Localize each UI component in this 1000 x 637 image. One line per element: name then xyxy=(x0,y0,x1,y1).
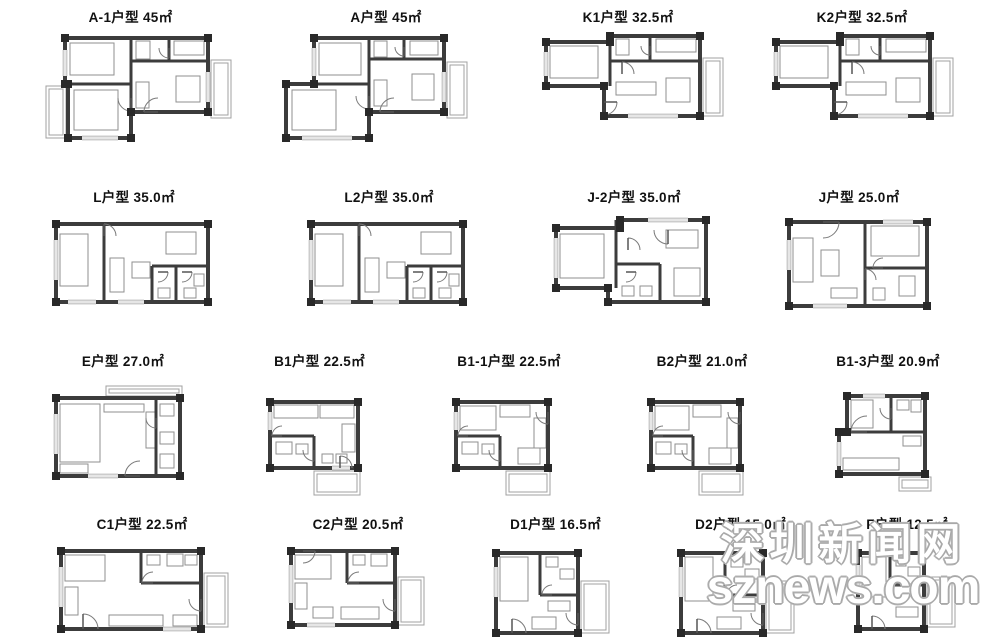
floor-plan-E: E户型 27.0㎡ xyxy=(48,352,198,482)
floor-plan-sheet: A-1户型 45㎡A户型 45㎡K1户型 32.5㎡K2户型 32.5㎡L户型 … xyxy=(0,0,1000,630)
plan-label: A户型 45㎡ xyxy=(272,8,500,30)
floor-plan-drawing xyxy=(18,30,243,160)
plan-name: F户型 xyxy=(866,517,902,532)
plan-name: D1户型 xyxy=(510,517,555,532)
plan-name: B2户型 xyxy=(657,354,702,369)
plan-name: B1户型 xyxy=(274,354,319,369)
plan-name: A户型 xyxy=(350,10,388,25)
floor-plan-B1-3: B1-3户型 20.9㎡ xyxy=(833,352,943,499)
floor-plan-drawing xyxy=(528,30,728,160)
floor-plan-D2: D2户型 15.0㎡ xyxy=(673,515,808,637)
plan-label: B1-3户型 20.9㎡ xyxy=(833,352,943,374)
floor-plan-B1-1: B1-1户型 22.5㎡ xyxy=(448,352,570,499)
plan-area: 27.0㎡ xyxy=(123,354,164,369)
plan-area: 22.5㎡ xyxy=(146,517,187,532)
floor-plan-B2: B2户型 21.0㎡ xyxy=(643,352,761,499)
floor-plan-A: A户型 45㎡ xyxy=(272,8,500,160)
plan-name: B1-3户型 xyxy=(836,354,894,369)
plan-label: B1-1户型 22.5㎡ xyxy=(448,352,570,374)
floor-plan-drawing xyxy=(848,537,966,637)
plan-area: 12.5㎡ xyxy=(906,517,947,532)
floor-plan-K2: K2户型 32.5㎡ xyxy=(762,8,962,160)
plan-area: 21.0㎡ xyxy=(706,354,747,369)
plan-name: L户型 xyxy=(93,190,129,205)
floor-plan-F: F户型 12.5㎡ xyxy=(848,515,966,637)
floor-plan-drawing xyxy=(448,374,570,499)
floor-plan-D1: D1户型 16.5㎡ xyxy=(488,515,623,637)
floor-plan-drawing xyxy=(643,374,761,499)
plan-name: K2户型 xyxy=(817,10,862,25)
plan-label: D1户型 16.5㎡ xyxy=(488,515,623,537)
floor-plan-drawing xyxy=(673,537,808,637)
plan-area: 22.5㎡ xyxy=(324,354,365,369)
plan-name: A-1户型 xyxy=(89,10,139,25)
plan-name: E户型 xyxy=(82,354,119,369)
plan-label: K1户型 32.5㎡ xyxy=(528,8,728,30)
plan-area: 32.5㎡ xyxy=(632,10,673,25)
floor-plan-C2: C2户型 20.5㎡ xyxy=(283,515,433,637)
floor-plan-C1: C1户型 22.5㎡ xyxy=(53,515,231,637)
floor-plan-drawing xyxy=(548,210,720,315)
plan-name: J户型 xyxy=(819,190,854,205)
plan-area: 35.0㎡ xyxy=(133,190,174,205)
plan-name: D2户型 xyxy=(695,517,740,532)
plan-name: C2户型 xyxy=(313,517,358,532)
floor-plan-drawing xyxy=(53,537,231,637)
plan-area: 15.0㎡ xyxy=(745,517,786,532)
floor-plan-L: L户型 35.0㎡ xyxy=(48,188,220,315)
floor-plan-drawing xyxy=(262,374,377,499)
floor-plan-L2: L2户型 35.0㎡ xyxy=(303,188,475,315)
plan-label: J户型 25.0㎡ xyxy=(783,188,935,210)
plan-area: 16.5㎡ xyxy=(560,517,601,532)
plan-name: B1-1户型 xyxy=(457,354,515,369)
plan-name: C1户型 xyxy=(97,517,142,532)
plan-label: E户型 27.0㎡ xyxy=(48,352,198,374)
floor-plan-drawing xyxy=(833,374,943,499)
plan-area: 35.0㎡ xyxy=(639,190,680,205)
plan-area: 32.5㎡ xyxy=(866,10,907,25)
plan-label: K2户型 32.5㎡ xyxy=(762,8,962,30)
plan-label: C2户型 20.5㎡ xyxy=(283,515,433,537)
plan-label: D2户型 15.0㎡ xyxy=(673,515,808,537)
plan-label: L户型 35.0㎡ xyxy=(48,188,220,210)
plan-label: L2户型 35.0㎡ xyxy=(303,188,475,210)
plan-area: 45㎡ xyxy=(392,10,421,25)
plan-name: J-2户型 xyxy=(587,190,635,205)
plan-area: 35.0㎡ xyxy=(392,190,433,205)
floor-plan-A-1: A-1户型 45㎡ xyxy=(18,8,243,160)
plan-area: 20.9㎡ xyxy=(898,354,939,369)
floor-plan-J-2: J-2户型 35.0㎡ xyxy=(548,188,720,315)
plan-label: F户型 12.5㎡ xyxy=(848,515,966,537)
floor-plan-drawing xyxy=(783,210,935,315)
floor-plan-drawing xyxy=(283,537,433,637)
floor-plan-drawing xyxy=(48,374,198,482)
plan-area: 45㎡ xyxy=(143,10,172,25)
plan-label: B1户型 22.5㎡ xyxy=(262,352,377,374)
floor-plan-B1: B1户型 22.5㎡ xyxy=(262,352,377,499)
plan-label: J-2户型 35.0㎡ xyxy=(548,188,720,210)
plan-name: L2户型 xyxy=(344,190,388,205)
plan-label: A-1户型 45㎡ xyxy=(18,8,243,30)
floor-plan-J: J户型 25.0㎡ xyxy=(783,188,935,315)
floor-plan-drawing xyxy=(762,30,962,160)
plan-area: 22.5㎡ xyxy=(519,354,560,369)
plan-label: C1户型 22.5㎡ xyxy=(53,515,231,537)
plan-name: K1户型 xyxy=(583,10,628,25)
floor-plan-drawing xyxy=(48,210,220,315)
plan-area: 25.0㎡ xyxy=(858,190,899,205)
floor-plan-K1: K1户型 32.5㎡ xyxy=(528,8,728,160)
plan-area: 20.5㎡ xyxy=(362,517,403,532)
floor-plan-drawing xyxy=(303,210,475,315)
floor-plan-drawing xyxy=(272,30,500,160)
plan-label: B2户型 21.0㎡ xyxy=(643,352,761,374)
floor-plan-drawing xyxy=(488,537,623,637)
